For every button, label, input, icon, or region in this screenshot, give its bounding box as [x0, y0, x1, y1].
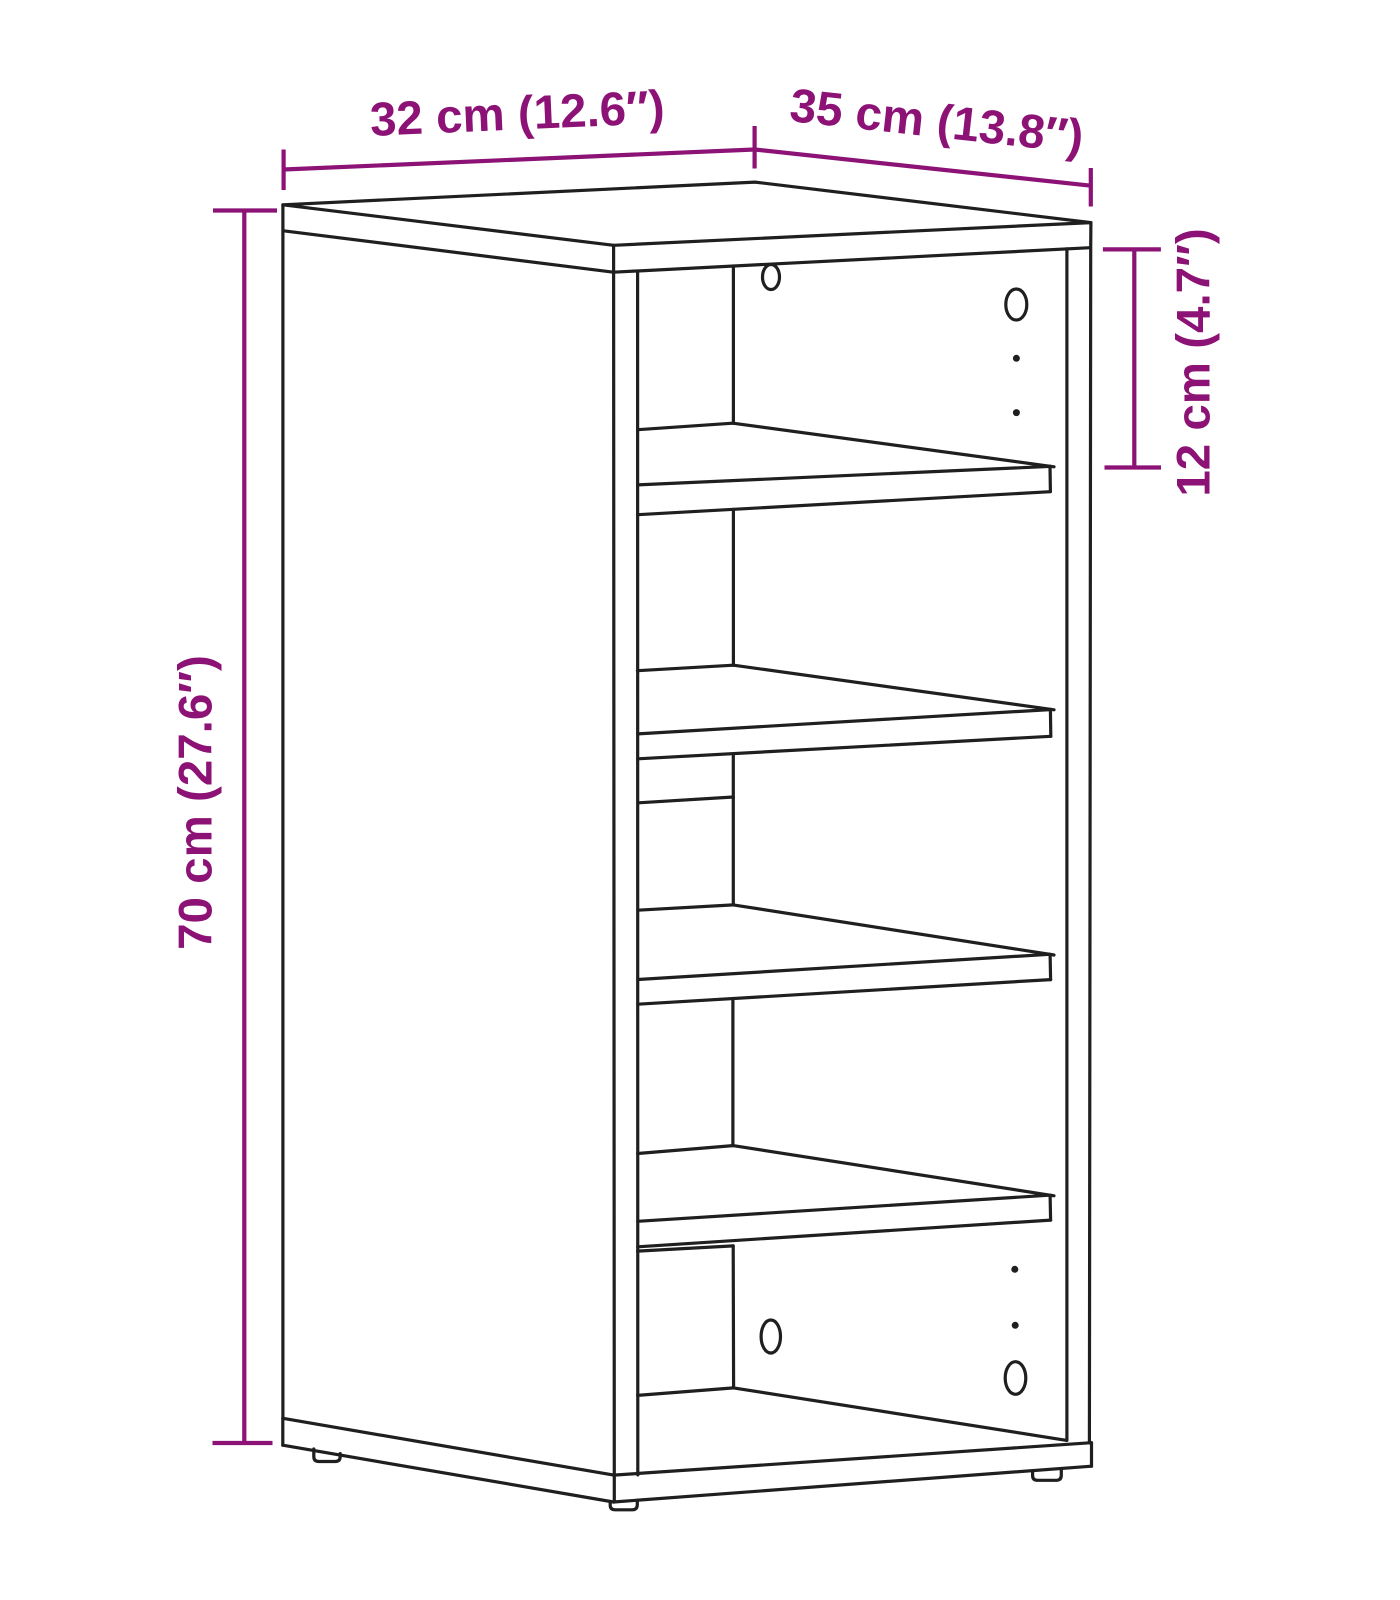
svg-text:70 cm (27.6″): 70 cm (27.6″): [170, 655, 223, 950]
svg-text:12 cm (4.7″): 12 cm (4.7″): [1168, 228, 1221, 496]
